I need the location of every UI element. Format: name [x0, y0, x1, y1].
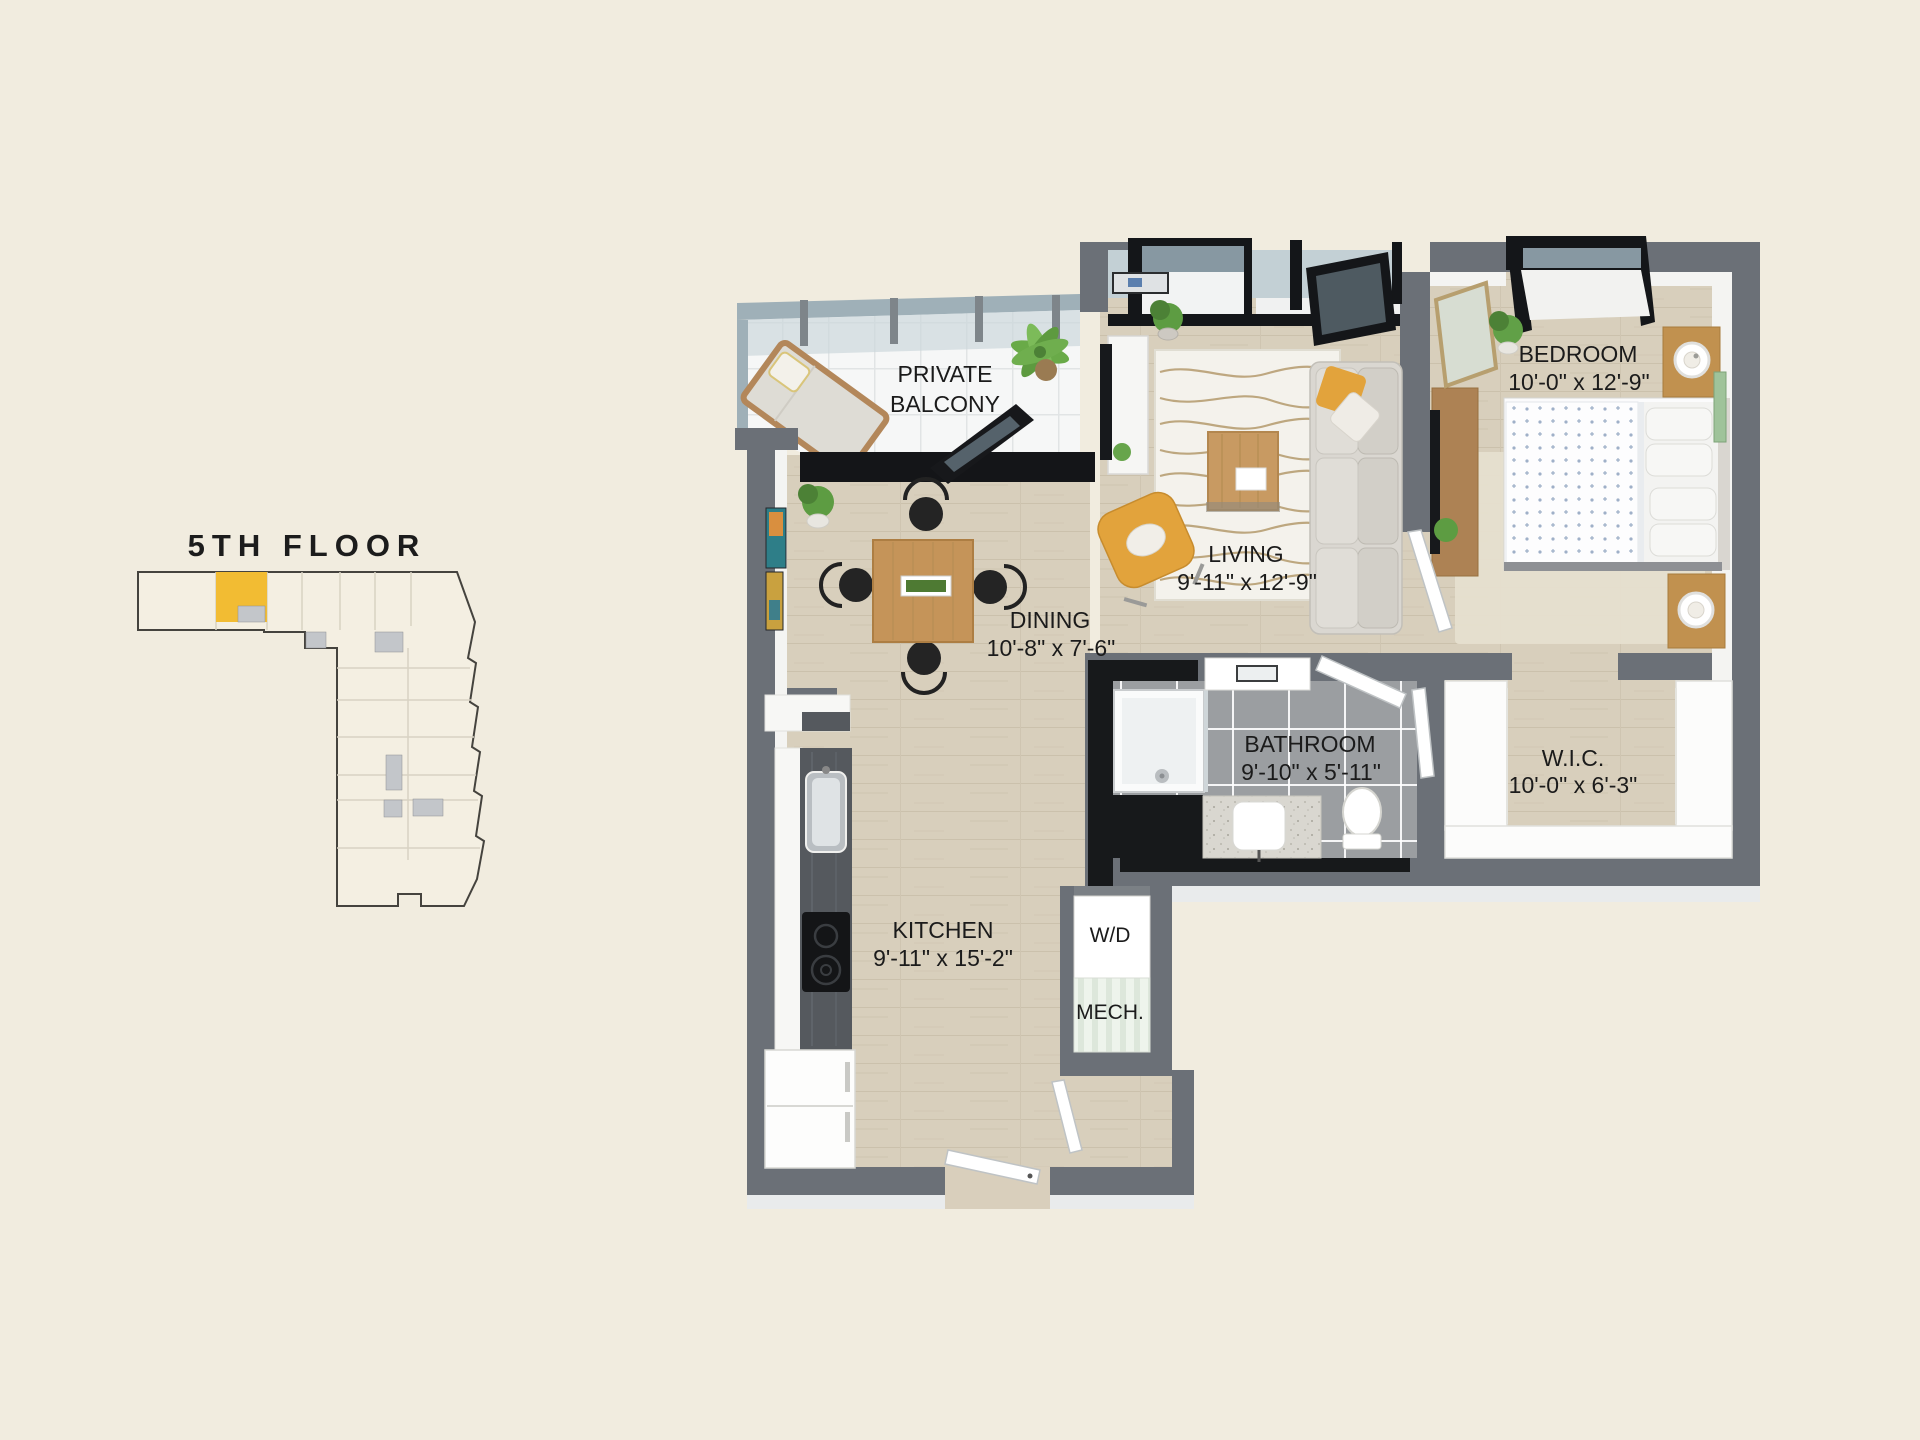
kitchen-dims: 9'-11" x 15'-2"	[873, 945, 1013, 971]
cooktop	[802, 912, 850, 992]
keyplan-core	[384, 800, 402, 817]
vanity	[1113, 795, 1321, 862]
wic-label: W.I.C.	[1542, 745, 1605, 771]
living-label: LIVING	[1208, 541, 1283, 567]
tv-console	[1100, 336, 1148, 474]
shower	[1114, 690, 1208, 792]
dining-label: DINING	[1010, 607, 1091, 633]
wic-dims: 10'-0" x 6'-3"	[1509, 772, 1638, 798]
nightstand-bottom	[1668, 574, 1725, 648]
console-plant	[1113, 443, 1131, 461]
bathroom-label: BATHROOM	[1244, 731, 1375, 757]
coffee-table	[1206, 432, 1280, 512]
bedroom-dresser	[1430, 388, 1478, 576]
floorplan-page: 5TH FLOOR	[0, 0, 1920, 1440]
mirror-cabinet	[1205, 658, 1310, 690]
unit-floorplan: LIVING 9'-11" x 12'-9"	[735, 236, 1760, 1209]
bedroom-dims: 10'-0" x 12'-9"	[1508, 369, 1649, 395]
keyplan-core	[386, 755, 402, 790]
sofa	[1310, 362, 1402, 634]
mech-label: MECH.	[1076, 1001, 1144, 1024]
tv	[1100, 344, 1112, 460]
kitchen-sink	[806, 766, 846, 852]
nightstand-top	[1663, 327, 1720, 397]
living-balcony-door-open	[1306, 252, 1396, 346]
dining-table	[873, 540, 973, 642]
dining-dims: 10'-8" x 7'-6"	[987, 635, 1116, 661]
fridge	[765, 1050, 855, 1168]
keyplan-core	[306, 632, 326, 648]
bathroom: BATHROOM 9'-10" x 5'-11"	[1113, 656, 1417, 862]
keyplan-building-outline	[138, 572, 484, 906]
bed	[1504, 398, 1730, 571]
bathroom-dims: 9'-10" x 5'-11"	[1241, 759, 1381, 785]
balcony-label-line2: BALCONY	[890, 391, 1000, 417]
upper-counter	[765, 695, 850, 731]
bedroom-label: BEDROOM	[1519, 341, 1638, 367]
keyplan-core	[413, 799, 443, 816]
living-dims: 9'-11" x 12'-9"	[1177, 569, 1317, 595]
keyplan-highlighted-unit	[216, 572, 267, 622]
sink	[1233, 802, 1285, 850]
leaning-mirror	[1436, 283, 1496, 386]
balcony-railing-left	[737, 320, 748, 434]
keyplan: 5TH FLOOR	[138, 528, 484, 906]
dresser-plant	[1434, 518, 1458, 542]
bedroom-wall-art	[1714, 372, 1726, 442]
keyplan-core	[375, 632, 403, 652]
kitchen-label: KITCHEN	[893, 917, 994, 943]
keyplan-title: 5TH FLOOR	[188, 528, 427, 563]
balcony-label-line1: PRIVATE	[898, 361, 993, 387]
toilet	[1343, 788, 1381, 849]
laundry-label: W/D	[1090, 924, 1131, 947]
